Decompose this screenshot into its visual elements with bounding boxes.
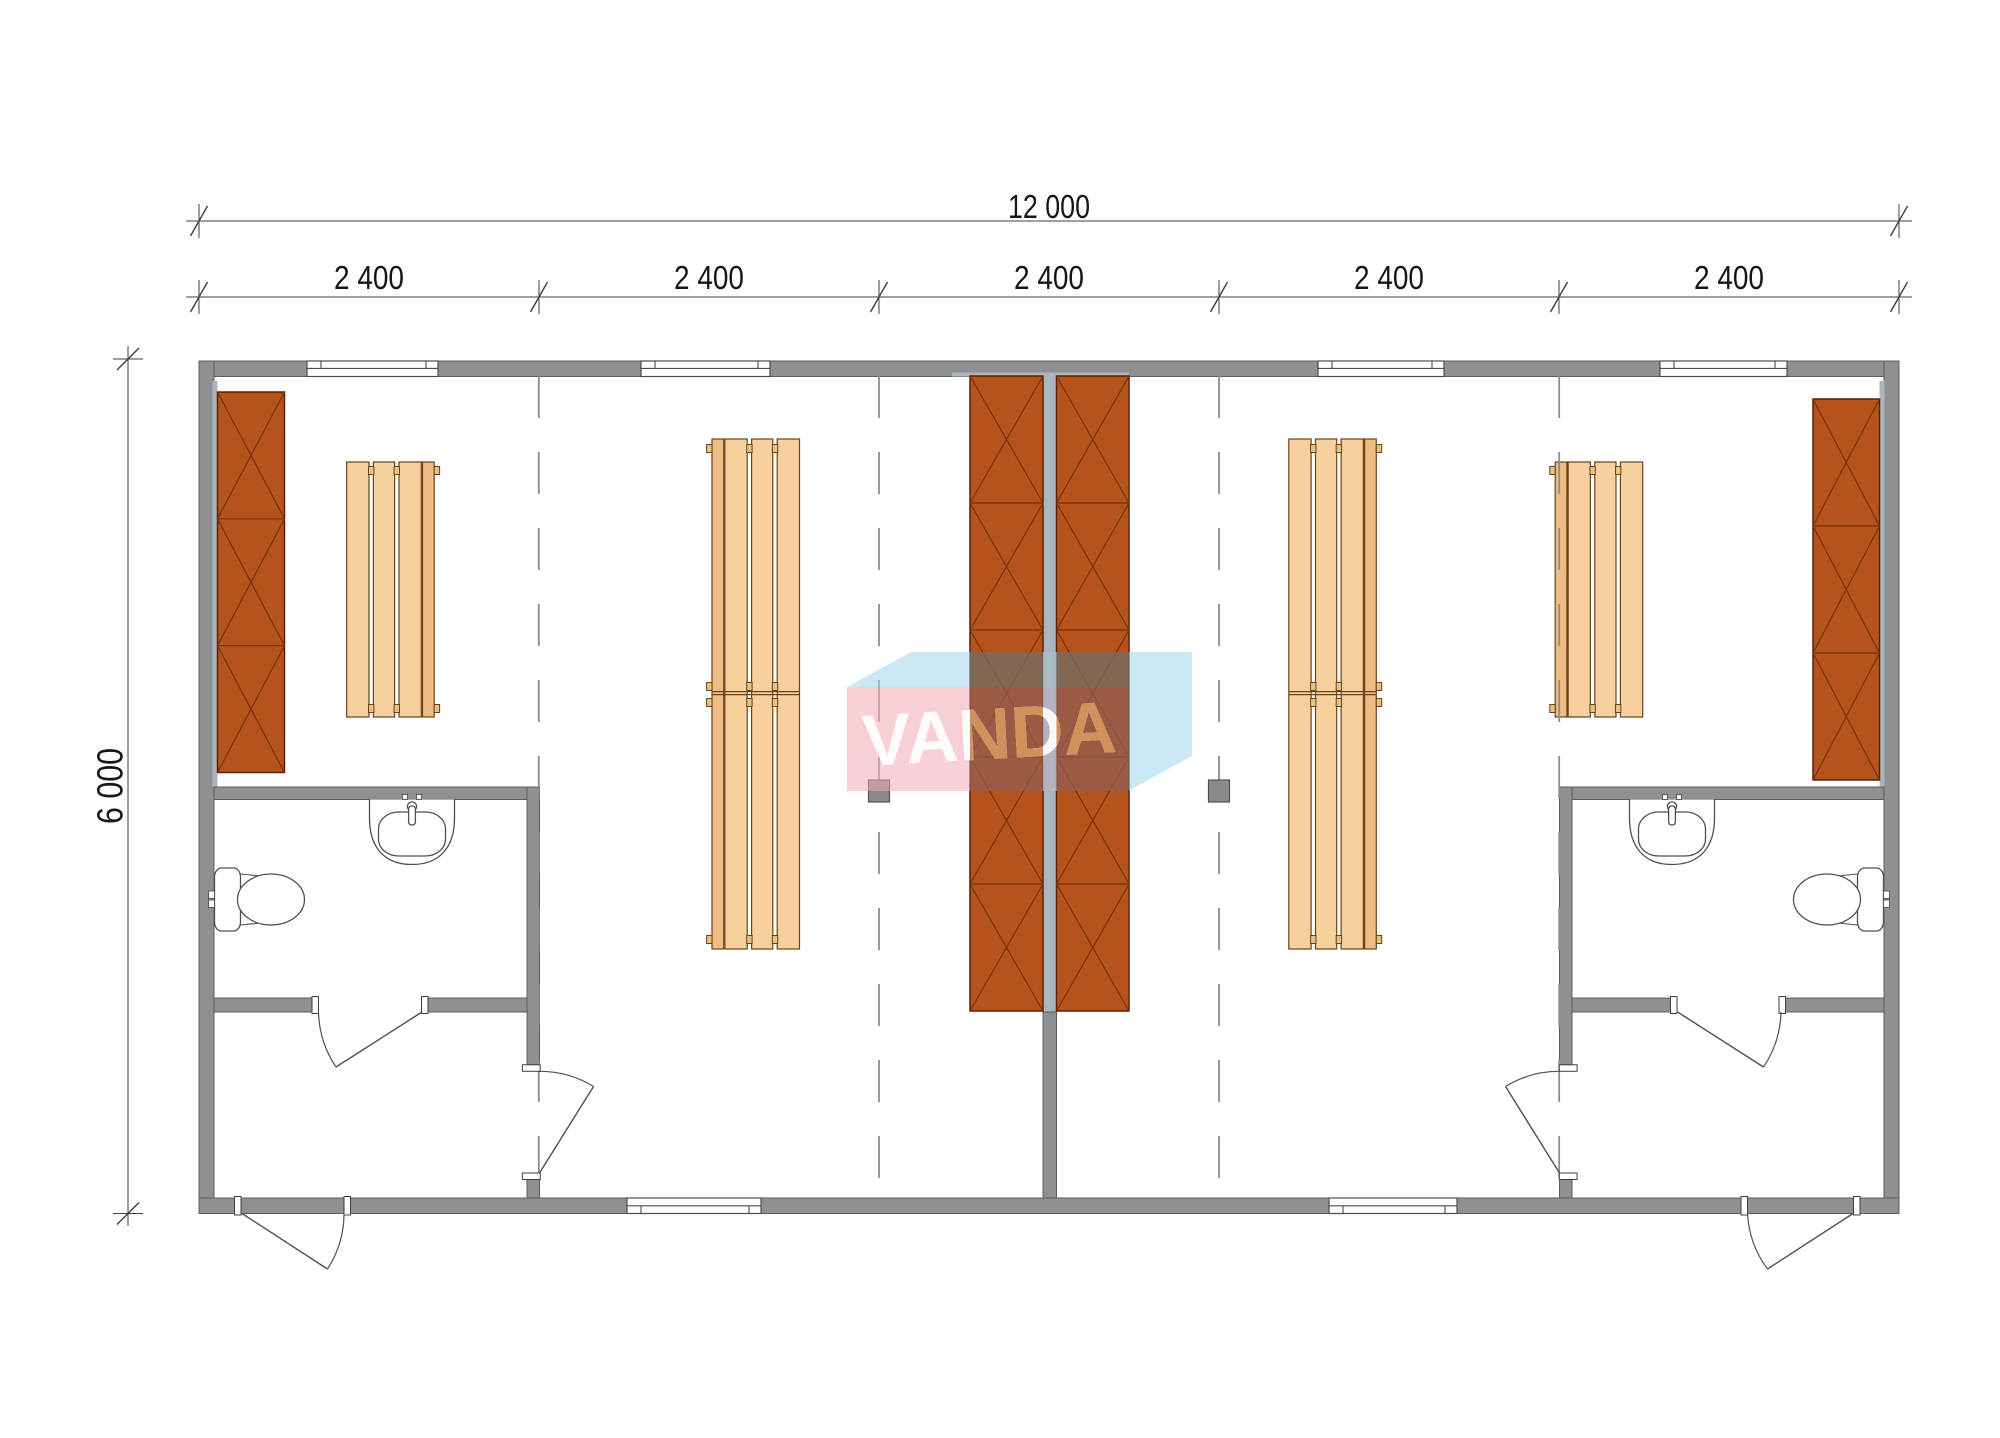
svg-text:2 400: 2 400 [1014, 260, 1084, 297]
svg-text:2 400: 2 400 [674, 260, 744, 297]
svg-text:6 000: 6 000 [90, 748, 131, 824]
svg-text:12 000: 12 000 [1008, 189, 1090, 226]
svg-text:2 400: 2 400 [1354, 260, 1424, 297]
svg-text:2 400: 2 400 [334, 260, 404, 297]
svg-text:2 400: 2 400 [1694, 260, 1764, 297]
